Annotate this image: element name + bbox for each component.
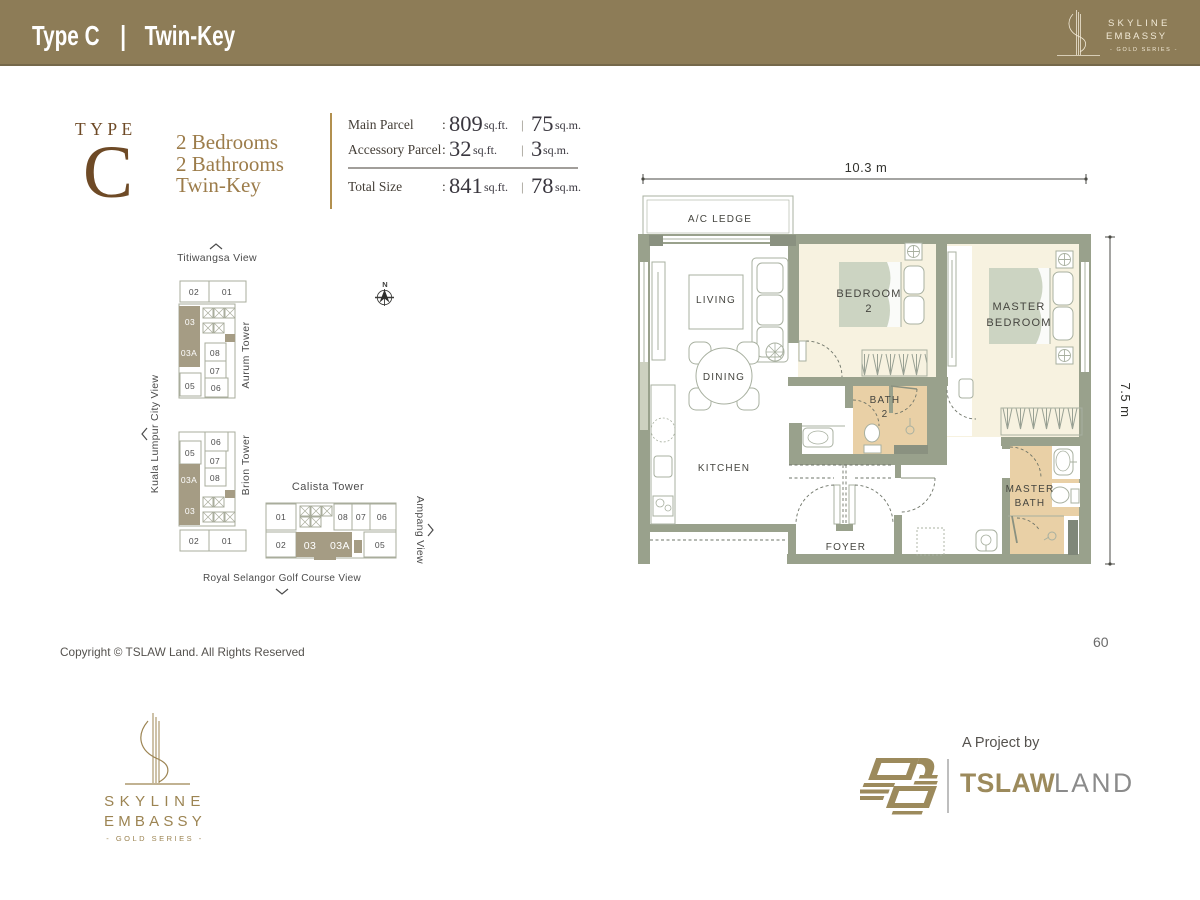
svg-text:Main Parcel: Main Parcel bbox=[348, 117, 414, 132]
svg-text:03: 03 bbox=[304, 540, 316, 552]
svg-text:Ampang View: Ampang View bbox=[414, 496, 426, 564]
svg-text:|: | bbox=[521, 117, 524, 132]
svg-text:SKYLINE: SKYLINE bbox=[104, 793, 206, 810]
svg-text:05: 05 bbox=[375, 540, 385, 550]
svg-text:Brion Tower: Brion Tower bbox=[240, 435, 252, 496]
svg-text:Aurum Tower: Aurum Tower bbox=[240, 321, 252, 388]
svg-text:BATH: BATH bbox=[870, 395, 901, 406]
svg-text:- GOLD SERIES -: - GOLD SERIES - bbox=[106, 834, 204, 843]
svg-text:sq.ft.: sq.ft. bbox=[484, 118, 508, 132]
svg-text:78: 78 bbox=[531, 173, 554, 198]
svg-text:Total Size: Total Size bbox=[348, 179, 402, 194]
svg-text:07: 07 bbox=[356, 512, 366, 522]
svg-text:841: 841 bbox=[449, 173, 483, 198]
svg-text:03A: 03A bbox=[181, 475, 197, 485]
svg-text:07: 07 bbox=[210, 456, 220, 466]
svg-text:|: | bbox=[521, 142, 524, 157]
svg-text:DINING: DINING bbox=[703, 372, 745, 383]
svg-text:06: 06 bbox=[211, 383, 221, 393]
svg-text:Royal Selangor Golf Course Vie: Royal Selangor Golf Course View bbox=[203, 573, 362, 584]
svg-text::: : bbox=[442, 142, 446, 157]
svg-text:08: 08 bbox=[338, 512, 348, 522]
svg-text:07: 07 bbox=[210, 366, 220, 376]
svg-text:06: 06 bbox=[377, 512, 387, 522]
svg-text:01: 01 bbox=[276, 512, 286, 522]
svg-text:MASTER: MASTER bbox=[1006, 484, 1055, 495]
svg-text:BATH: BATH bbox=[1015, 498, 1046, 509]
svg-text:Titiwangsa View: Titiwangsa View bbox=[177, 252, 257, 264]
svg-text:MASTER: MASTER bbox=[992, 301, 1045, 313]
svg-text:LIVING: LIVING bbox=[696, 295, 736, 306]
svg-text::: : bbox=[442, 117, 446, 132]
svg-text:Calista Tower: Calista Tower bbox=[292, 481, 364, 493]
svg-text:TSLAW: TSLAW bbox=[960, 768, 1055, 798]
svg-text:- GOLD SERIES -: - GOLD SERIES - bbox=[1110, 47, 1178, 53]
svg-text:02: 02 bbox=[189, 287, 199, 297]
svg-text:02: 02 bbox=[276, 540, 286, 550]
svg-text:08: 08 bbox=[210, 473, 220, 483]
svg-text:06: 06 bbox=[211, 437, 221, 447]
svg-text:BEDROOM: BEDROOM bbox=[836, 288, 901, 300]
svg-text:03: 03 bbox=[185, 317, 195, 327]
svg-text:A/C LEDGE: A/C LEDGE bbox=[688, 214, 752, 225]
svg-text:10.3 m: 10.3 m bbox=[845, 160, 888, 175]
svg-text:sq.ft.: sq.ft. bbox=[484, 180, 508, 194]
svg-text:EMBASSY: EMBASSY bbox=[104, 813, 206, 830]
svg-text:03A: 03A bbox=[181, 348, 197, 358]
svg-text:03A: 03A bbox=[330, 540, 350, 552]
svg-text:03: 03 bbox=[185, 506, 195, 516]
svg-text:75: 75 bbox=[531, 111, 554, 136]
svg-text:Kuala Lumpur City View: Kuala Lumpur City View bbox=[149, 375, 161, 494]
svg-text:SKYLINE: SKYLINE bbox=[1108, 18, 1171, 29]
svg-text:KITCHEN: KITCHEN bbox=[698, 463, 750, 474]
svg-text:2: 2 bbox=[882, 409, 889, 420]
svg-text:sq.m.: sq.m. bbox=[555, 180, 581, 194]
svg-text:2: 2 bbox=[865, 303, 872, 315]
svg-text:7.5 m: 7.5 m bbox=[1118, 382, 1133, 417]
svg-text:FOYER: FOYER bbox=[826, 542, 866, 553]
svg-text:3: 3 bbox=[531, 136, 542, 161]
svg-text:05: 05 bbox=[185, 448, 195, 458]
svg-text:BEDROOM: BEDROOM bbox=[986, 317, 1051, 329]
svg-text:809: 809 bbox=[449, 111, 483, 136]
svg-text:sq.m.: sq.m. bbox=[555, 118, 581, 132]
svg-text:02: 02 bbox=[189, 536, 199, 546]
svg-text:Accessory Parcel: Accessory Parcel bbox=[348, 142, 442, 157]
svg-text:08: 08 bbox=[210, 348, 220, 358]
svg-text:01: 01 bbox=[222, 536, 232, 546]
svg-text:05: 05 bbox=[185, 381, 195, 391]
svg-text:N: N bbox=[382, 280, 387, 289]
svg-text::: : bbox=[442, 179, 446, 194]
svg-text:01: 01 bbox=[222, 287, 232, 297]
svg-text:32: 32 bbox=[449, 136, 472, 161]
svg-text:sq.ft.: sq.ft. bbox=[473, 143, 497, 157]
svg-text:|: | bbox=[521, 179, 524, 194]
svg-text:sq.m.: sq.m. bbox=[543, 143, 569, 157]
svg-text:LAND: LAND bbox=[1054, 768, 1135, 798]
svg-text:EMBASSY: EMBASSY bbox=[1106, 31, 1167, 42]
